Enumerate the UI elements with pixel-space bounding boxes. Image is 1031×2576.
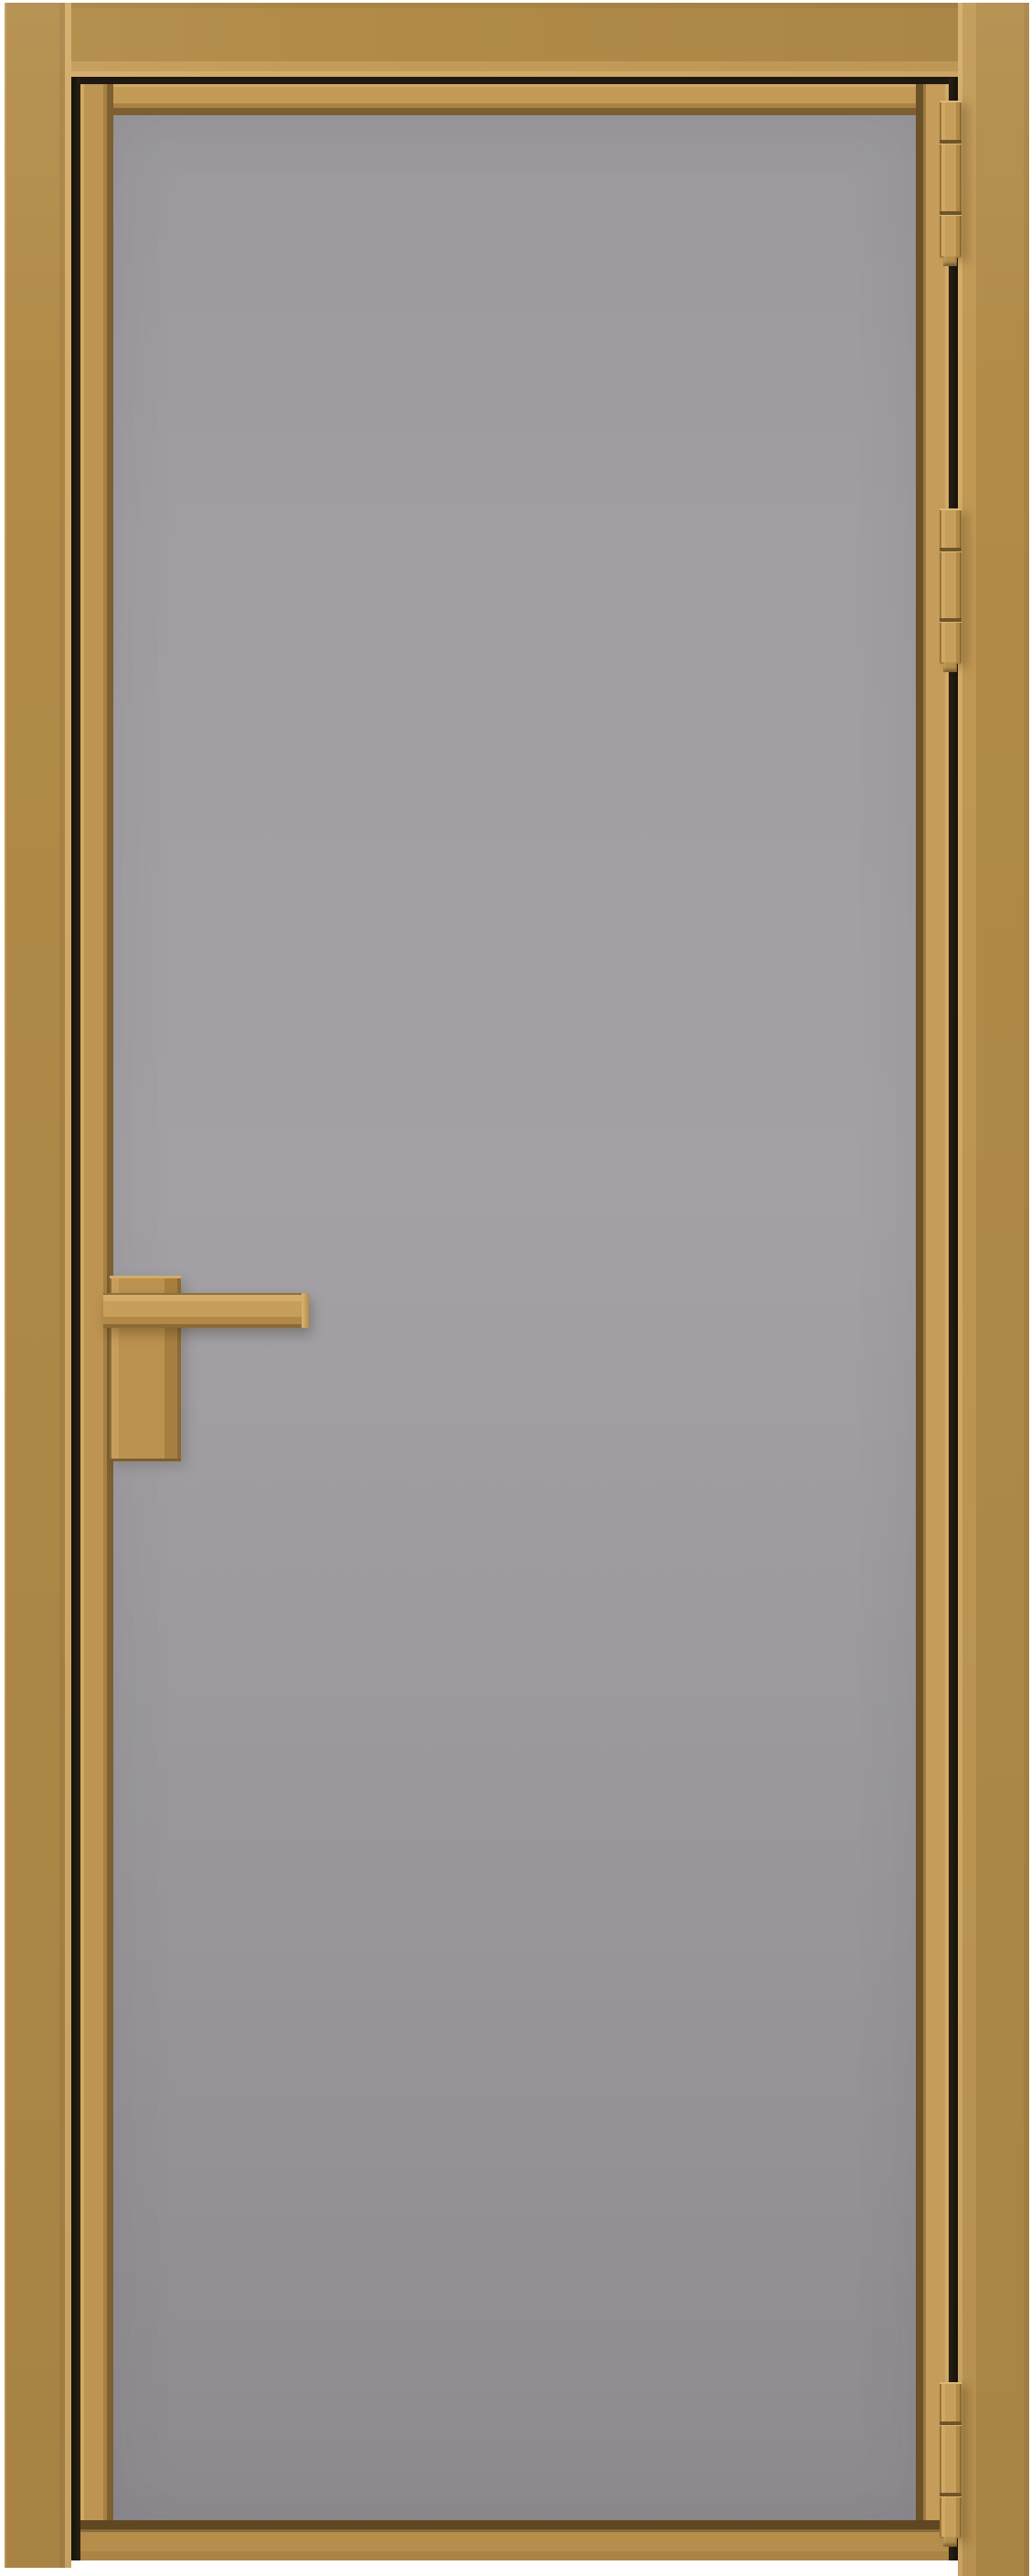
frame-leaf-gap-top — [71, 77, 949, 84]
door-frame-right-jamb — [958, 3, 1029, 2576]
handle-lever — [103, 1293, 309, 1328]
hinge-knuckle-seam — [940, 2421, 962, 2426]
hinge-knuckle-seam — [940, 140, 962, 144]
leaf-top-rail — [80, 84, 949, 115]
door-frame-head — [5, 3, 1029, 77]
door-product-photo — [0, 0, 1031, 2576]
leaf-bottom-rail — [80, 2520, 949, 2560]
hinge-knuckle-seam — [940, 618, 962, 623]
frame-leaf-gap-right — [949, 77, 958, 2560]
leaf-right-stile — [916, 84, 949, 2560]
hinge-knuckle-seam — [940, 548, 962, 552]
frame-leaf-gap-left — [71, 77, 80, 2560]
hinge-knuckle-seam — [940, 2493, 962, 2497]
hinge-mount-tab — [943, 662, 957, 672]
hinge-knuckle-seam — [940, 211, 962, 216]
hinge-upper-middle — [940, 508, 962, 664]
door-frame-left-jamb — [5, 3, 71, 2568]
hinge-mount-tab — [943, 256, 957, 266]
hinge-mount-tab — [943, 2537, 957, 2547]
hinge-bottom — [940, 2382, 962, 2539]
hinge-top — [940, 101, 962, 258]
